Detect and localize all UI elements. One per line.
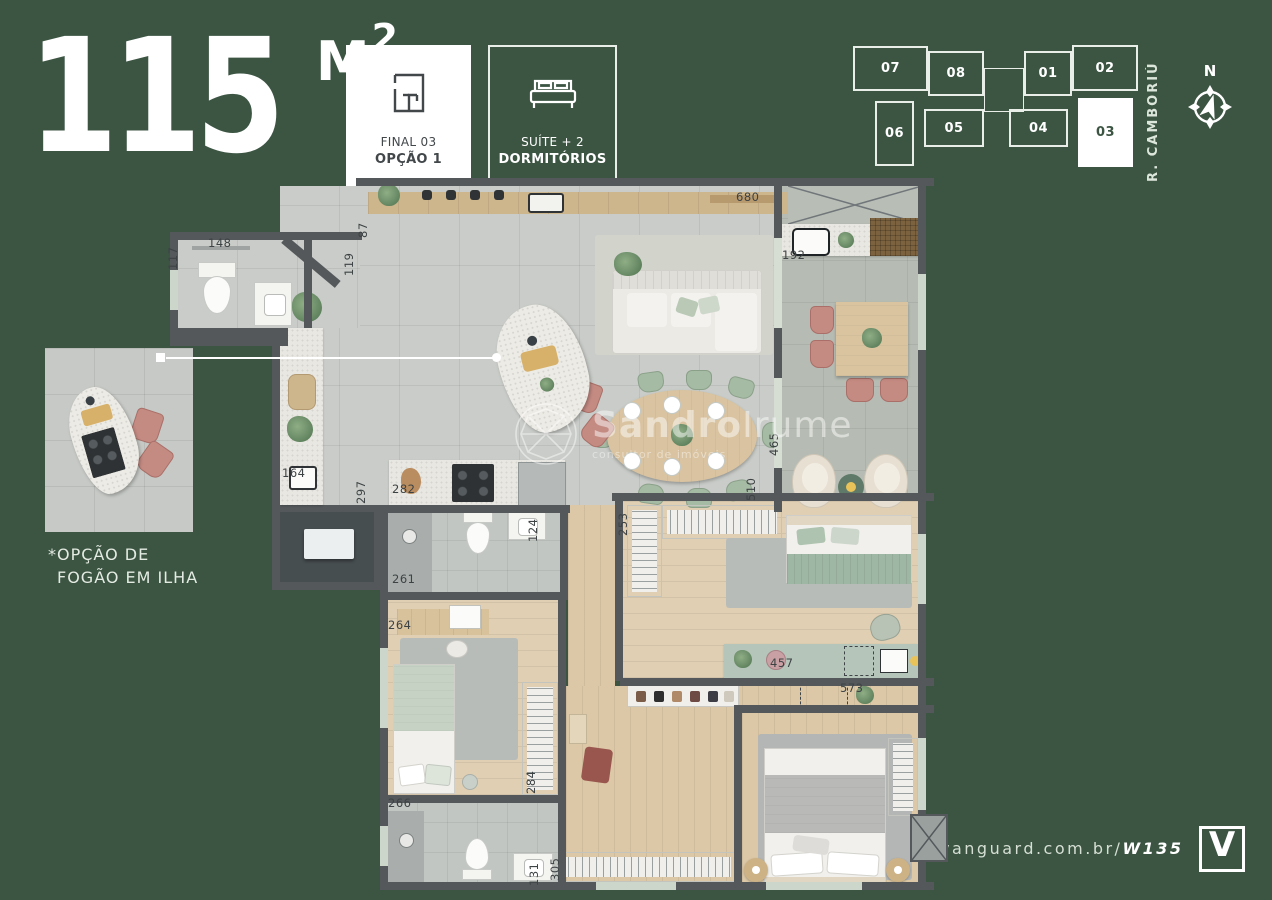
diamond-logo-icon (512, 400, 580, 468)
badge-suite-dorms: SUÍTE + 2 DORMITÓRIOS (488, 45, 617, 192)
badge-final-line1: FINAL 03 (346, 135, 471, 149)
dimension-label: 510 (744, 478, 758, 501)
inset-cooktop (81, 427, 126, 479)
keyplan-unit-04: 04 (1009, 109, 1068, 147)
street-name: R. CAMBORIÚ (1146, 52, 1168, 182)
compass-north-label: N (1183, 62, 1237, 80)
dimension-label: 117 (166, 247, 180, 270)
dimension-label: 119 (342, 253, 356, 276)
watermark: SandroIrume consultor de imóveis (512, 400, 853, 468)
compass-rose-icon (1184, 81, 1236, 133)
dimension-label: 192 (782, 248, 805, 262)
leader-line (166, 357, 496, 359)
dimension-label: 457 (770, 656, 793, 670)
bed-icon (490, 71, 615, 119)
watermark-name-bold: Sandro (592, 405, 742, 446)
brand-logo-letter: V (1209, 829, 1235, 861)
dimension-label: 124 (526, 519, 540, 542)
dimension-label: 261 (392, 572, 415, 586)
badge-final-option: FINAL 03 OPÇÃO 1 (346, 45, 471, 188)
brand-logo: V (1199, 826, 1245, 872)
dimension-label: 253 (616, 513, 630, 536)
page: 115M2 FINAL 03 OPÇÃO 1 SUÍTE + 2 DORMITÓ… (0, 0, 1272, 900)
keyplan-unit-08: 08 (928, 51, 984, 96)
watermark-name-light: Irume (742, 405, 852, 446)
dimension-label: 282 (392, 482, 415, 496)
keyplan-unit-07: 07 (853, 46, 928, 91)
leader-marker (156, 353, 165, 362)
area-value: 115 (28, 18, 279, 176)
dimension-label: 164 (282, 466, 305, 480)
badge-final-line2: OPÇÃO 1 (346, 152, 471, 167)
dimension-label: 87 (356, 222, 370, 238)
keyplan-unit-01: 01 (1024, 51, 1072, 96)
inset-tray (80, 403, 113, 427)
dimension-label: 264 (388, 618, 411, 632)
keyplan-unit-06: 06 (875, 101, 914, 166)
leader-endpoint (492, 353, 501, 362)
watermark-name: SandroIrume (592, 408, 853, 444)
watermark-subtitle: consultor de imóveis (592, 448, 853, 461)
floor-plan: 1171488711968019216429728212426126428426… (170, 178, 960, 890)
keyplan-unit-05: 05 (924, 109, 984, 147)
dimension-label: 148 (208, 236, 231, 250)
dimension-labels: 1171488711968019216429728212426126428426… (170, 178, 960, 890)
dimension-label: 297 (354, 481, 368, 504)
footer-url-domain: vanguard.com.br/ (940, 839, 1122, 858)
compass: N (1183, 62, 1237, 138)
footer-url-code: W135 (1122, 839, 1183, 858)
dimension-label: 573 (840, 681, 863, 695)
dimension-label: 680 (736, 190, 759, 204)
floorplan-icon (346, 69, 471, 117)
keyplan-unit-02: 02 (1072, 45, 1138, 91)
inset-bowl (85, 395, 96, 406)
dimension-label: 305 (548, 858, 562, 881)
inset-island (59, 380, 148, 501)
dimension-label: 131 (527, 863, 541, 886)
building-keyplan: 0708010206050403 (845, 38, 1145, 173)
dimension-label: 266 (388, 796, 411, 810)
keyplan-unit-03: 03 (1078, 98, 1133, 167)
keyplan-core (984, 68, 1024, 112)
badge-suite-line2: DORMITÓRIOS (490, 152, 615, 167)
badge-suite-line1: SUÍTE + 2 (490, 135, 615, 149)
footer-url: vanguard.com.br/W135 (940, 839, 1168, 858)
dimension-label: 284 (524, 771, 538, 794)
